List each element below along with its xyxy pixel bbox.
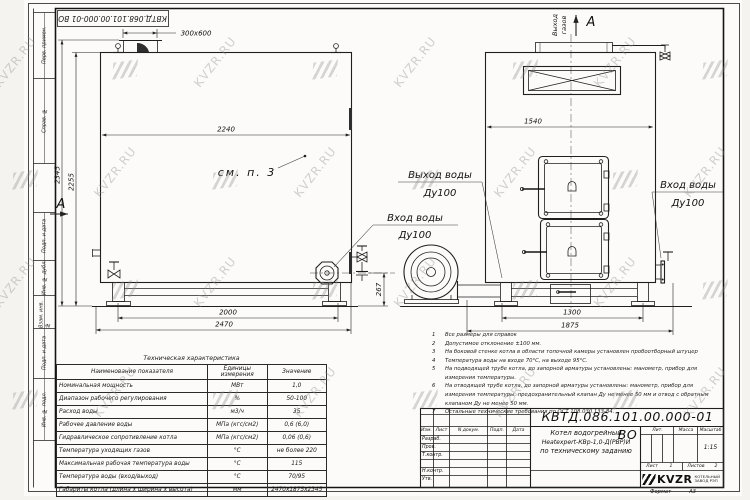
margin-label-podp-data-1: Подп. и дата <box>34 212 55 260</box>
notes-list: 1Все размеры для справок2Допустимое откл… <box>432 331 724 417</box>
spec-cell: м3/ч <box>208 406 268 419</box>
dim-1875: 1875 <box>561 322 579 330</box>
water-outlet-label: Выход воды <box>408 170 472 181</box>
spec-cell: Температура воды (вход/выход) <box>57 471 208 484</box>
spec-cell: °С <box>208 471 268 484</box>
spec-row: Диапазон рабочего регулирования%50-100 <box>57 393 327 406</box>
note-text: Все размеры для справок <box>445 331 724 340</box>
note-number: 6 <box>432 382 445 408</box>
note-text: На боковой стенке котла в области топочн… <box>445 348 724 357</box>
spec-table: Наименование показателяЕдиницы измерения… <box>56 364 327 497</box>
spec-cell: мм <box>208 484 268 497</box>
dim-2000: 2000 <box>219 309 237 317</box>
tb-col-ndokum: N докум. <box>450 428 487 433</box>
margin-label-vzam-inv: Взам. инв. № <box>34 295 55 328</box>
dim-1300: 1300 <box>563 309 581 317</box>
spec-header-row: Наименование показателяЕдиницы измерения… <box>57 365 327 380</box>
water-inlet-label: Вход воды <box>387 213 443 224</box>
dim-1540: 1540 <box>524 118 542 126</box>
spec-cell: 1,0 <box>267 380 327 393</box>
spec-row: Температура воды (вход/выход)°С70/95 <box>57 471 327 484</box>
spec-cell: Расход воды <box>57 406 208 419</box>
spec-table-grid: Наименование показателяЕдиницы измерения… <box>56 364 327 497</box>
margin-label-sprav-no: Справ. № <box>34 78 55 163</box>
product-name-line2: Heatexpert-КВр-1,0-Д(РВР)И <box>531 438 641 447</box>
tb-sheets-label: Листов <box>683 464 709 469</box>
dim-2255: 2255 <box>68 173 76 191</box>
pipe-labels: Выход газов А Выход воды Ду100 Вход воды… <box>334 14 723 278</box>
view-label-a: А <box>586 15 596 30</box>
tb-sheet-value: 1 <box>663 464 679 469</box>
spec-cell: 35 <box>267 406 327 419</box>
spec-cell: 115 <box>267 458 327 471</box>
note-item: 1Все размеры для справок <box>432 331 724 340</box>
tb-lit-label: Лит. <box>641 428 674 433</box>
dim-flue: 300x600 <box>181 30 212 38</box>
spec-cell: Гидравлическое сопротивление котла <box>57 432 208 445</box>
dim-2345: 2345 <box>54 166 62 184</box>
spec-header-cell: Наименование показателя <box>57 365 208 380</box>
gas-outlet-label-2: газов <box>560 16 568 35</box>
spec-cell: Габариты котла (длина х ширина х высота) <box>57 484 208 497</box>
note-item: 5На подводящей трубе котла, до запорной … <box>432 365 724 382</box>
tb-sheet-label: Лист <box>641 464 663 469</box>
tb-row-utv: Утв. <box>422 477 432 482</box>
margin-label-podp-data-2: Подп. и дата <box>34 328 55 378</box>
spec-cell: °С <box>208 458 268 471</box>
water-inlet-right-label: Вход воды <box>660 180 716 191</box>
tb-row-nkontr: Н.контр. <box>422 469 443 474</box>
spec-cell: °С <box>208 445 268 458</box>
margin-label-inv-dubl: Инв. № дубл. <box>34 260 55 295</box>
spec-cell: 0,06 (0,6) <box>267 432 327 445</box>
dim-267: 267 <box>375 282 383 296</box>
tb-row-tkontr: Т.контр. <box>422 453 443 458</box>
spec-header-cell: Единицы измерения <box>208 365 268 380</box>
see-note-label: см. п. 3 <box>218 166 277 179</box>
tb-col-data: Дата <box>507 428 530 433</box>
note-text: На отводящей трубе котла, до запорной ар… <box>445 382 724 408</box>
product-name: Котел водогрейный Heatexpert-КВр-1,0-Д(Р… <box>531 428 641 457</box>
spec-cell: МВт <box>208 380 268 393</box>
section-label-a-left: А <box>56 197 66 212</box>
water-inlet-dn: Ду100 <box>398 230 432 241</box>
note-item: 4Температура воды на входе 70°С, на выхо… <box>432 357 724 366</box>
kvzr-logo-text: KVZR <box>657 473 692 486</box>
note-number: 1 <box>432 331 445 340</box>
spec-cell: МПа (кгс/см2) <box>208 419 268 432</box>
company-name: КОТЕЛЬНЫЙ ЗАВОД РЭП <box>694 475 720 484</box>
tb-scale-value: 1:15 <box>697 444 724 451</box>
note-number: 5 <box>432 365 445 382</box>
spec-row: Расход водым3/ч35 <box>57 406 327 419</box>
tb-col-list: Лист <box>434 428 449 433</box>
spec-cell: 2470х1875х2345 <box>267 484 327 497</box>
spec-cell: % <box>208 393 268 406</box>
note-number: 4 <box>432 357 445 366</box>
spec-cell: Номинальная мощность <box>57 380 208 393</box>
margin-label-inv-podl: Инв. № подл. <box>34 378 55 440</box>
water-inlet-right-dn: Ду100 <box>671 198 705 209</box>
kvzr-logo-bars-icon <box>641 474 656 485</box>
margin-label-perv-primen: Перв. примен. <box>34 12 55 78</box>
product-name-line1: Котел водогрейный <box>531 428 641 438</box>
note-item: 6На отводящей трубе котла, до запорной а… <box>432 382 724 408</box>
top-left-doc-number: КВТД.068.101.00.000-01 ВО <box>57 10 168 27</box>
dim-2240: 2240 <box>217 126 235 134</box>
spec-cell: Максимальная рабочая температура воды <box>57 458 208 471</box>
gas-outlet-label-1: Выход <box>551 14 559 36</box>
water-outlet-dn: Ду100 <box>423 188 457 199</box>
spec-row: Температура уходящих газов°Сне более 220 <box>57 445 327 458</box>
tb-sheets-value: 2 <box>709 464 723 469</box>
company-name-line2: ЗАВОД РЭП <box>694 478 717 483</box>
format-label: Формат <box>650 489 671 495</box>
note-text: Температура воды на входе 70°С, на выход… <box>445 357 724 366</box>
product-name-line3: по техническому заданию <box>531 447 641 457</box>
dim-2470: 2470 <box>215 321 233 329</box>
blueprint-page: 300x600 2240 2345 2255 2000 2470 267 см.… <box>0 0 750 500</box>
spec-row: Габариты котла (длина х ширина х высота)… <box>57 484 327 497</box>
spec-row: Рабочее давление водыМПа (кгс/см2)0,6 (6… <box>57 419 327 432</box>
spec-table-title: Техническая характеристика <box>56 355 327 362</box>
tb-row-prov: Пров. <box>422 445 436 450</box>
spec-cell: Рабочее давление воды <box>57 419 208 432</box>
spec-row: Гидравлическое сопротивление котлаМПа (к… <box>57 432 327 445</box>
spec-cell: Диапазон рабочего регулирования <box>57 393 208 406</box>
spec-row: Номинальная мощностьМВт1,0 <box>57 380 327 393</box>
format-value: А3 <box>689 489 696 495</box>
title-block-doc-number: КВТД.086.101.00.000-01 ВО <box>531 408 724 426</box>
note-number: 2 <box>432 340 445 349</box>
note-text: На подводящей трубе котла, до запорной а… <box>445 365 724 382</box>
tb-col-izm: Изм. <box>420 428 433 433</box>
format-note: Формат А3 <box>618 489 728 495</box>
note-number: 3 <box>432 348 445 357</box>
spec-row: Максимальная рабочая температура воды°С1… <box>57 458 327 471</box>
note-item: 2Допустимое отклонение ±100 мм. <box>432 340 724 349</box>
spec-cell: не более 220 <box>267 445 327 458</box>
note-number: 7 <box>432 408 445 417</box>
tb-mass-label: Масса <box>674 428 698 433</box>
boiler-side-view: 300x600 2240 2345 2255 2000 2470 267 см.… <box>50 29 395 334</box>
note-item: 3На боковой стенке котла в области топоч… <box>432 348 724 357</box>
spec-cell: 0,6 (6,0) <box>267 419 327 432</box>
spec-cell: 70/95 <box>267 471 327 484</box>
tb-row-razrab: Разраб. <box>422 437 441 442</box>
spec-cell: 50-100 <box>267 393 327 406</box>
tb-col-podp: Подп. <box>488 428 506 433</box>
note-text: Допустимое отклонение ±100 мм. <box>445 340 724 349</box>
spec-header-cell: Значение <box>267 365 327 380</box>
spec-cell: МПа (кгс/см2) <box>208 432 268 445</box>
tb-scale-label: Масштаб <box>697 428 724 433</box>
spec-cell: Температура уходящих газов <box>57 445 208 458</box>
company-logo: KVZR КОТЕЛЬНЫЙ ЗАВОД РЭП <box>642 471 724 487</box>
